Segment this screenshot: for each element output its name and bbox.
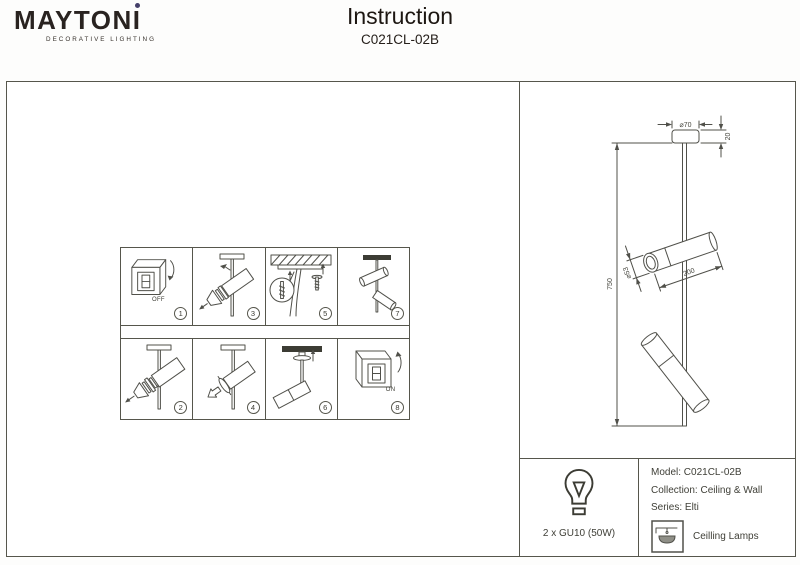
dim-overall-height-label: 750 [607, 278, 614, 290]
dimension-drawing: 750 200 ⌀53 [520, 82, 795, 458]
instructions-panel: OFF 1 3 [6, 81, 520, 557]
step-cell-8: ON 8 [338, 339, 409, 419]
step-cell-1: OFF 1 [121, 248, 193, 325]
step-cell-7: 7 [338, 248, 409, 325]
step-number-badge: 8 [391, 401, 404, 414]
dim-canopy-height-label: 20 [725, 133, 732, 141]
category-row: Ceilling Lamps [651, 520, 795, 553]
instruction-sheet: { "header": { "brand": "MAYTONI", "tagli… [0, 0, 800, 565]
step-number-badge: 5 [319, 307, 332, 320]
steps-row-odd: OFF 1 3 [121, 248, 409, 325]
model-subtitle: C021CL-02B [280, 32, 520, 47]
grid-spacer [121, 325, 409, 339]
model-text: Model: C021CL-02B [651, 467, 795, 478]
product-panel: 750 200 ⌀53 [519, 81, 796, 557]
step-number-badge: 1 [174, 307, 187, 320]
bulb-icon [561, 468, 597, 520]
brand-logo: MAYTONI DECORATIVE LIGHTING [14, 7, 156, 43]
switch-on-label: ON [386, 387, 396, 393]
step-number-badge: 7 [391, 307, 404, 320]
steps-row-even: 2 4 [121, 339, 409, 419]
brand-accent-dot-icon [135, 3, 140, 8]
spec-section: 2 x GU10 (50W) Model: C021CL-02B Collect… [520, 458, 795, 557]
product-details-cell: Model: C021CL-02B Collection: Ceiling & … [639, 459, 795, 557]
step-cell-6: 6 [266, 339, 338, 419]
dim-canopy-diameter-label: ⌀70 [679, 122, 691, 129]
assembly-steps-grid: OFF 1 3 [120, 247, 410, 420]
series-text: Series: Elti [651, 502, 795, 513]
step-cell-2: 2 [121, 339, 193, 419]
bulb-spec-cell: 2 x GU10 (50W) [520, 459, 639, 557]
page-title: Instruction [280, 3, 520, 30]
document-titles: Instruction C021CL-02B [280, 3, 520, 47]
collection-text: Collection: Ceiling & Wall [651, 485, 795, 496]
lamp-spec-text: 2 x GU10 (50W) [520, 528, 638, 539]
step-number-badge: 6 [319, 401, 332, 414]
power-on-switch-illustration [338, 341, 408, 407]
step-cell-4: 4 [193, 339, 265, 419]
dim-spot-diameter-label: ⌀53 [623, 266, 634, 280]
category-text: Ceilling Lamps [693, 531, 759, 542]
ceiling-lamp-icon [651, 520, 684, 553]
brand-tagline: DECORATIVE LIGHTING [14, 36, 156, 43]
step-cell-5: 5 [266, 248, 338, 325]
switch-off-label: OFF [152, 297, 165, 303]
step-cell-3: 3 [193, 248, 265, 325]
step-number-badge: 3 [247, 307, 260, 320]
step-number-badge: 4 [247, 401, 260, 414]
brand-text: MAYTONI [14, 5, 142, 35]
